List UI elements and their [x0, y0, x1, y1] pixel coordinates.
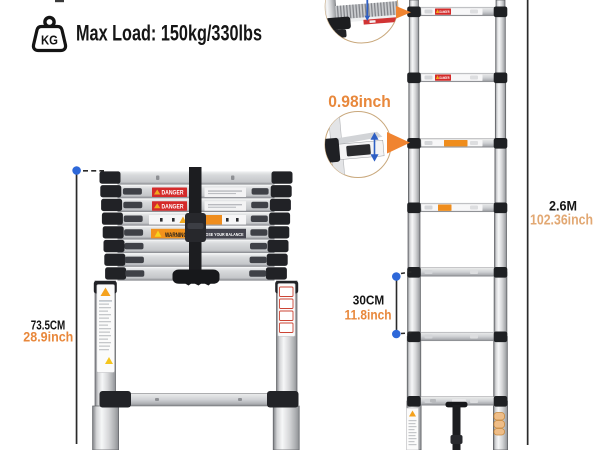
svg-text:2.6M: 2.6M — [549, 198, 577, 214]
svg-text:DANGER: DANGER — [162, 190, 184, 197]
svg-text:11.8inch: 11.8inch — [345, 308, 392, 323]
svg-text:DANGER: DANGER — [440, 10, 450, 14]
svg-text:30CM: 30CM — [353, 293, 385, 308]
svg-text:102.36inch: 102.36inch — [530, 213, 593, 229]
svg-text:Max Load: 150kg/330lbs: Max Load: 150kg/330lbs — [76, 21, 262, 46]
svg-text:DANGER: DANGER — [440, 76, 450, 80]
svg-text:WARNING: WARNING — [165, 232, 187, 239]
svg-text:0.98inch: 0.98inch — [328, 93, 391, 111]
svg-text:OSE YOUR BALANCE: OSE YOUR BALANCE — [206, 232, 244, 237]
svg-text:28.9inch: 28.9inch — [23, 330, 73, 345]
svg-text:DANGER: DANGER — [162, 203, 184, 210]
svg-text:KG: KG — [41, 33, 58, 48]
